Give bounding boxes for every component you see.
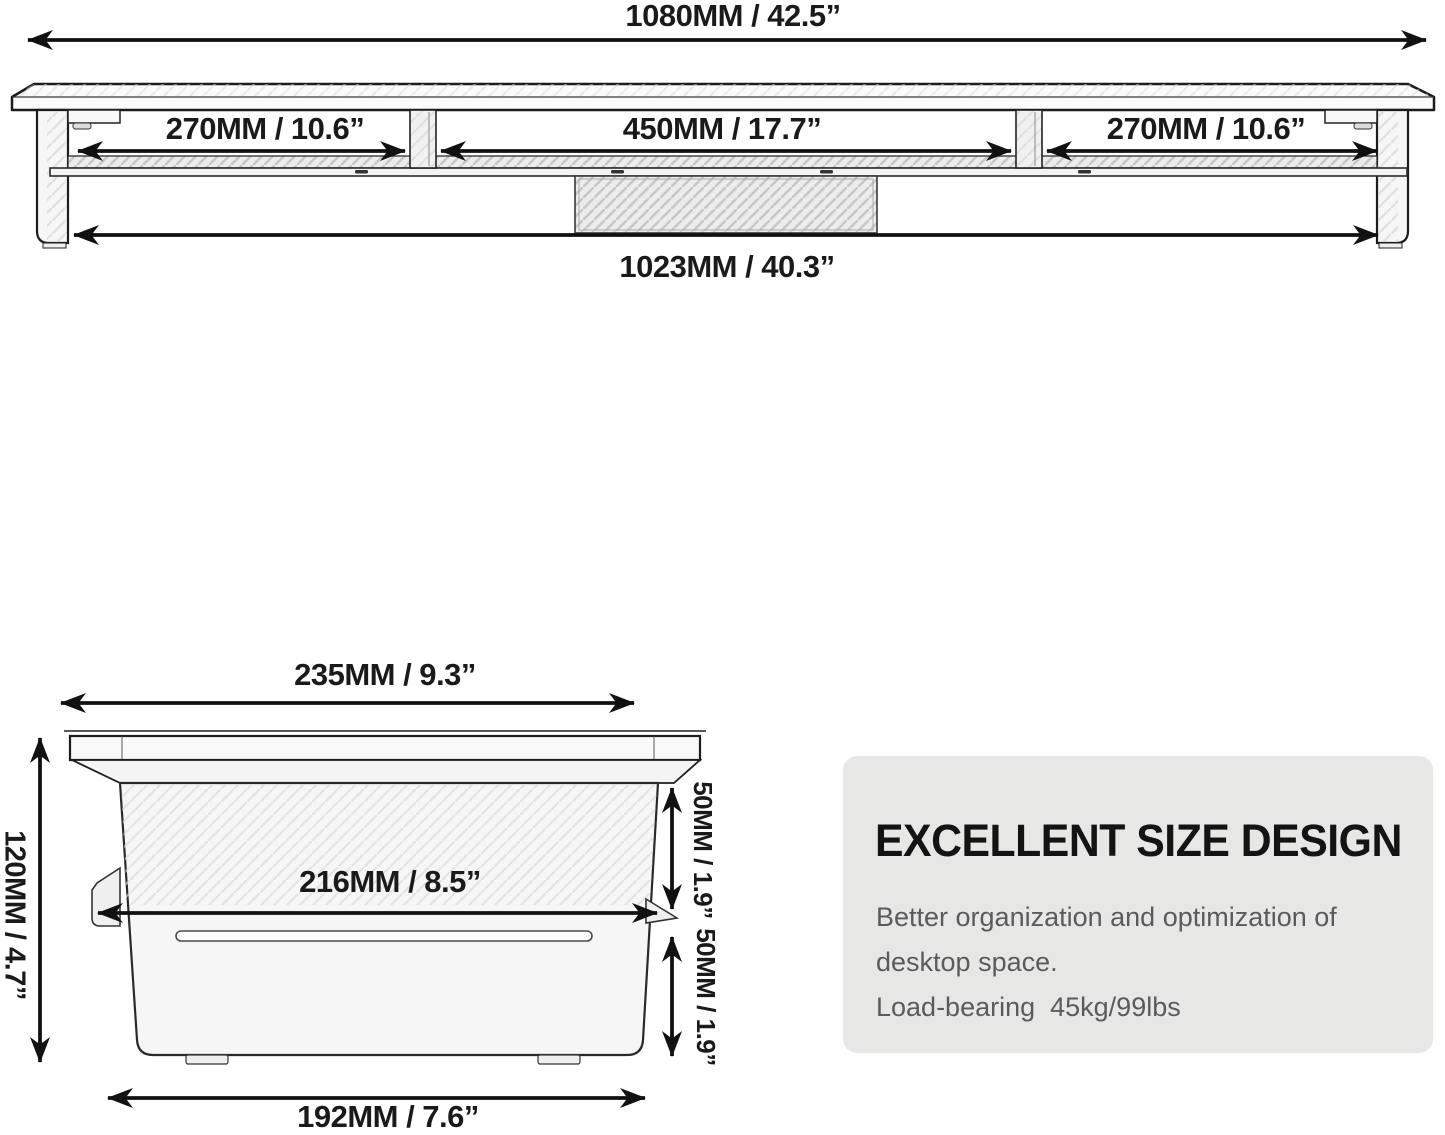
top-board	[12, 84, 1434, 110]
divider-left	[410, 110, 436, 168]
middle-shelf	[50, 156, 1407, 176]
side-body	[92, 783, 677, 1064]
info-title: EXCELLENT SIZE DESIGN	[875, 818, 1405, 863]
label-base-depth: 192MM / 7.6”	[297, 1101, 479, 1132]
left-leg	[37, 110, 120, 248]
divider-right	[1016, 110, 1042, 168]
label-shelf-depth: 216MM / 8.5”	[299, 866, 481, 897]
info-body: Better organization and optimization of …	[876, 895, 1433, 1030]
center-riser	[575, 176, 877, 233]
side-top-board	[64, 731, 706, 783]
label-upper-gap: 50MM / 1.9”	[690, 781, 716, 919]
info-line-2: desktop space.	[876, 940, 1433, 985]
label-lower-gap: 50MM / 1.9”	[693, 928, 719, 1066]
label-inner-width: 1023MM / 40.3”	[619, 251, 834, 282]
label-overall-width: 1080MM / 42.5”	[625, 0, 840, 31]
label-top-depth: 235MM / 9.3”	[294, 659, 476, 690]
label-right-compartment: 270MM / 10.6”	[1107, 113, 1306, 144]
info-box: EXCELLENT SIZE DESIGN Better organizatio…	[843, 756, 1433, 1053]
size-design-diagram: 1080MM / 42.5” 270MM / 10.6” 450MM / 17.…	[0, 0, 1445, 1135]
label-center-compartment: 450MM / 17.7”	[623, 113, 822, 144]
info-line-1: Better organization and optimization of	[876, 895, 1433, 940]
info-line-3: Load-bearing 45kg/99lbs	[876, 985, 1433, 1030]
label-left-compartment: 270MM / 10.6”	[166, 113, 365, 144]
slot	[176, 931, 592, 941]
label-overall-height: 120MM / 4.7”	[0, 830, 29, 1000]
right-leg	[1325, 110, 1408, 248]
foot-right	[538, 1055, 580, 1064]
cable-hook	[92, 868, 120, 926]
foot-left	[186, 1055, 228, 1064]
